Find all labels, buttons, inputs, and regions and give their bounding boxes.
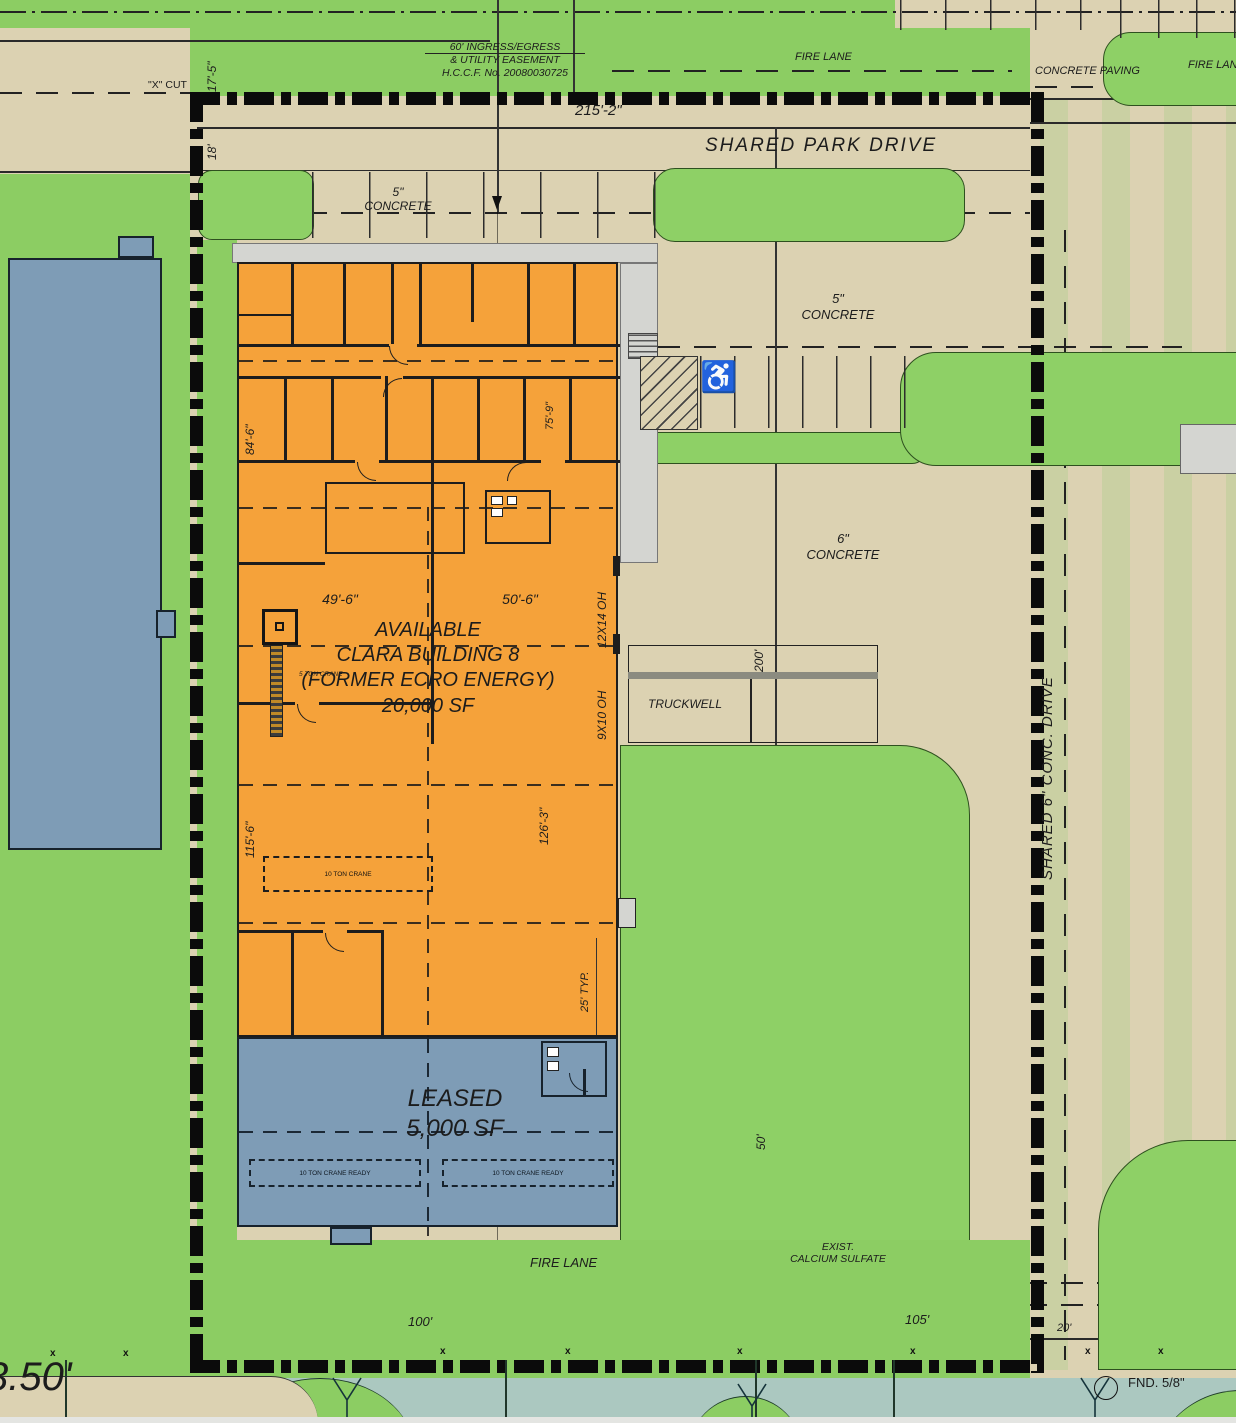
wall-segment [381,930,384,1036]
wall-segment [239,930,291,933]
survey-line [505,1360,507,1423]
overhead-door-mark [613,634,620,654]
truckwell-divider [750,679,752,743]
dim-18: 18' [206,144,219,160]
dim-3-50: 3.50' [0,1356,72,1398]
site-plan: ♿ [0,0,1236,1423]
tree-symbol [330,1376,364,1422]
parking-ticks-north [900,0,1112,30]
dim-215-2: 215'-2" [575,103,622,119]
shared-park-drive-label: SHARED PARK DRIVE [705,136,937,156]
concrete-5-right-size: 5" [798,292,878,306]
found-monument-circle [1094,1376,1118,1400]
fire-lane-label-bottom: FIRE LANE [530,1256,597,1270]
x-cut-label: "X" CUT [148,80,187,91]
oh-door-12x14: 12X14 OH [596,592,609,648]
wall-segment [343,264,346,344]
sidewalk-north [232,243,658,263]
dim-line-215 [197,127,1030,129]
fire-lane-band [197,1240,1030,1360]
interior-room [325,482,465,554]
fence-x-mark: x [565,1346,571,1357]
wall-segment [527,264,530,344]
leased-line1: LEASED [365,1086,545,1111]
survey-line [893,1360,895,1423]
wall-segment [284,376,287,460]
fire-lane-dash-top [612,70,1012,72]
crane-ready-label: 10 TON CRANE READY [492,1170,563,1177]
wall-segment [417,344,620,347]
west-landscape-strip [197,240,237,1240]
wall-segment [291,930,294,1036]
calcium-line2: CALCIUM SULFATE [778,1254,898,1265]
truckwell-label: TRUCKWELL [648,698,722,711]
dim-25-typ: 25' TYP. [580,972,592,1012]
parking-ticks-northeast [1120,0,1236,38]
dim-200: 200' [753,650,766,672]
concrete-6-size: 6" [803,532,883,546]
east-road-line-2 [1030,122,1236,124]
wall-segment [477,376,480,460]
door-arc [389,346,408,365]
south-truck-court-green [620,745,970,1242]
landscape-strip-mid [625,432,927,464]
available-line1: AVAILABLE [278,620,578,641]
dim-115-6: 115'-6" [244,822,257,858]
road-dashed-line [0,92,190,94]
dim-126-3: 126'-3" [538,808,551,845]
fence-x-mark: x [50,1348,56,1359]
available-line2: CLARA BUILDING 8 [278,645,578,666]
dim-50-6: 50'-6" [470,592,570,607]
fence-x-mark: x [1158,1346,1164,1357]
road-south-edge [0,171,190,173]
fence-x-mark: x [440,1346,446,1357]
fence-x-mark: x [123,1348,129,1359]
concrete-5-left-size: 5" [358,186,438,199]
easement-note-line3: H.C.C.F. No. 20080030725 [417,68,593,79]
available-line4: 20,000 SF [278,696,578,717]
dim-49-6: 49'-6" [290,592,390,607]
wall-segment [569,376,572,460]
wall-segment [431,376,434,460]
fence-x-mark: x [737,1346,743,1357]
easement-note-line1: 60' INGRESS/EGRESS [425,42,585,54]
dim-50ft: 50' [755,1134,768,1150]
calcium-line1: EXIST. [778,1242,898,1253]
wall-segment [331,376,334,460]
dim-17-5: 17'-5" [206,61,219,92]
parking-island-left [198,170,314,240]
property-boundary-west [190,92,203,1373]
available-line3: (FORMER ECRO ENERGY) [278,670,578,691]
wall-segment [239,460,355,463]
east-gray-pad [1180,424,1236,474]
easement-note-line2: & UTILITY EASEMENT [425,55,585,66]
hatched-walkway [640,356,698,430]
bottom-border-strip [0,1417,1236,1423]
fire-lane-label-top: FIRE LANE [795,52,852,64]
handicap-icon: ♿ [700,362,737,394]
truckwell-dock-edge [628,672,878,679]
north-road-pavement [0,28,190,174]
leased-door-notch [330,1227,372,1245]
wall-segment [523,376,526,460]
fence-x-mark: x [910,1346,916,1357]
wall-segment [471,264,474,322]
wall-segment [391,264,394,344]
road-edge-line [0,40,490,42]
property-boundary-south [190,1360,1044,1373]
leased-line2: 5,000 SF [365,1116,545,1141]
concrete-5-left-word: CONCRETE [358,200,438,213]
overhead-door-mark [613,556,620,576]
wall-segment [239,376,381,379]
door-arc [507,462,526,481]
oh-door-9x10: 9X10 OH [596,691,609,740]
parking-island-right [653,168,965,242]
wall-segment [239,344,389,347]
wall-segment [239,314,291,316]
concrete-6-word: CONCRETE [803,548,883,562]
neighbor-building [8,258,162,850]
wall-segment [347,930,384,933]
shared-conc-drive-label: SHARED 6" CONC. DRIVE [1040,676,1056,880]
door-arc [357,462,376,481]
crane-ready-box-2: 10 TON CRANE READY [442,1159,614,1187]
concrete-paving-label: CONCRETE PAVING [1035,66,1140,78]
wall-segment [291,930,323,933]
drive-dash-2 [622,346,1182,348]
wall-segment [403,376,620,379]
crane-10ton-label: 10 TON CRANE [324,871,371,878]
neighbor-door-bump-1 [118,236,154,258]
dim-105: 105' [905,1313,929,1327]
dim-25-extension [596,938,597,1035]
wall-segment [291,264,294,344]
fire-lane-label-topright: FIRE LANE [1188,60,1236,72]
crane-ready-box-1: 10 TON CRANE READY [249,1159,421,1187]
fence-x-mark: x [1085,1346,1091,1357]
door-arc [325,933,344,952]
dim-84-6: 84'-6" [244,424,257,455]
neighbor-door-bump-2 [156,610,176,638]
dim-20: 20' [1057,1323,1071,1335]
wall-segment [573,264,576,344]
concrete-5-right-word: CONCRETE [798,308,878,322]
dim-75-9: 75'-9" [545,402,557,430]
wall-segment [239,562,325,565]
dim-100: 100' [408,1315,432,1329]
crane-10ton-box: 10 TON CRANE [263,856,433,892]
side-door-pad [618,898,636,928]
wall-segment [419,264,422,344]
wall-segment [379,460,541,463]
found-monument-label: FND. 5/8" [1128,1376,1185,1390]
island-southeast [1098,1140,1236,1370]
crane-ready-label: 10 TON CRANE READY [299,1170,370,1177]
wall-segment [565,460,620,463]
